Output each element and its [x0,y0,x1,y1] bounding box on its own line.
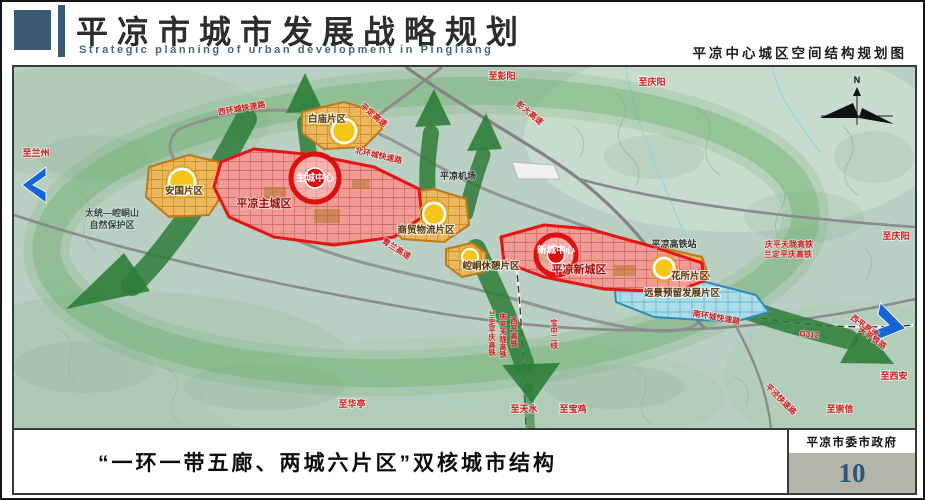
label-hsr-station: 平凉高铁站 [651,238,696,249]
label-qptl-hsr-vertical: 庆平天陇高铁 [498,312,507,360]
label-new-city: 平凉新城区 [552,262,607,276]
content-frame: N 平凉主城区 主城中心 平凉新城区 新城中心 安国片区 白庙片区 商贸物流片区… [12,65,917,495]
label-district-huasuo: 花所片区 [671,270,710,282]
label-to-baoji: 至宝鸡 [559,403,586,414]
airport-area [512,162,560,179]
map-subtitle: 平凉中心城区空间结构规划图 [693,42,908,62]
label-xiping-hsr: 西平高铁 [509,317,518,349]
label-to-tianshui: 至天水 [510,403,538,414]
label-to-qingyang-right: 至庆阳 [882,230,909,241]
label-to-huating: 至华亭 [338,398,365,409]
label-nature-reserve-2: 自然保护区 [89,219,134,230]
map-canvas: N 平凉主城区 主城中心 平凉新城区 新城中心 安国片区 白庙片区 商贸物流片区… [14,67,915,428]
planning-document-page: 平凉市城市发展战略规划 Strategic planning of urban … [0,0,925,500]
label-new-center: 新城中心 [537,244,576,256]
page-title-english: Strategic planning of urban development … [79,44,494,56]
label-to-lanzhou: 至兰州 [22,147,49,158]
label-to-chongxin: 至崇信 [826,403,853,414]
label-baozhong-line2: 宝中二线 [549,318,558,351]
page-number: 10 [789,453,915,493]
planning-map: N 平凉主城区 主城中心 平凉新城区 新城中心 安国片区 白庙片区 商贸物流片区… [14,67,915,430]
info-box: 平凉市委市政府 10 [787,430,915,493]
label-district-leisure: 崆峒休憩片区 [462,260,520,272]
caption-band: “一环一带五廊、两城六片区”双核城市结构 [14,430,915,493]
label-main-city: 平凉主城区 [237,196,292,210]
label-nature-reserve-1: 太统—崆峒山 [84,207,139,218]
label-main-center: 主城中心 [296,172,335,184]
agency-name: 平凉市委市政府 [789,430,915,453]
label-to-pengyang: 至彭阳 [488,70,515,81]
label-airport: 平凉机场 [440,170,476,181]
label-hsr-qptl: 庆平天陇高铁 [764,239,813,249]
label-district-baimiao: 白庙片区 [308,113,347,125]
compass-north-label: N [854,75,861,85]
label-to-qingyang-top: 至庆阳 [638,76,665,87]
label-district-reserve-dev: 远景预留发展片区 [644,287,721,299]
header: 平凉市城市发展战略规划 Strategic planning of urban … [2,2,923,64]
header-accent-square [14,10,51,50]
label-ldpq-hsr-vertical: 兰定平庆高铁 [487,310,496,358]
label-to-xian: 至西安 [880,370,907,381]
label-district-trade: 商贸物流片区 [397,224,455,236]
label-hsr-ldpq: 兰定平庆高铁 [764,249,812,259]
header-accent-bar [58,5,65,57]
label-district-anguo: 安国片区 [165,185,204,197]
structure-caption: “一环一带五廊、两城六片区”双核城市结构 [98,447,557,477]
